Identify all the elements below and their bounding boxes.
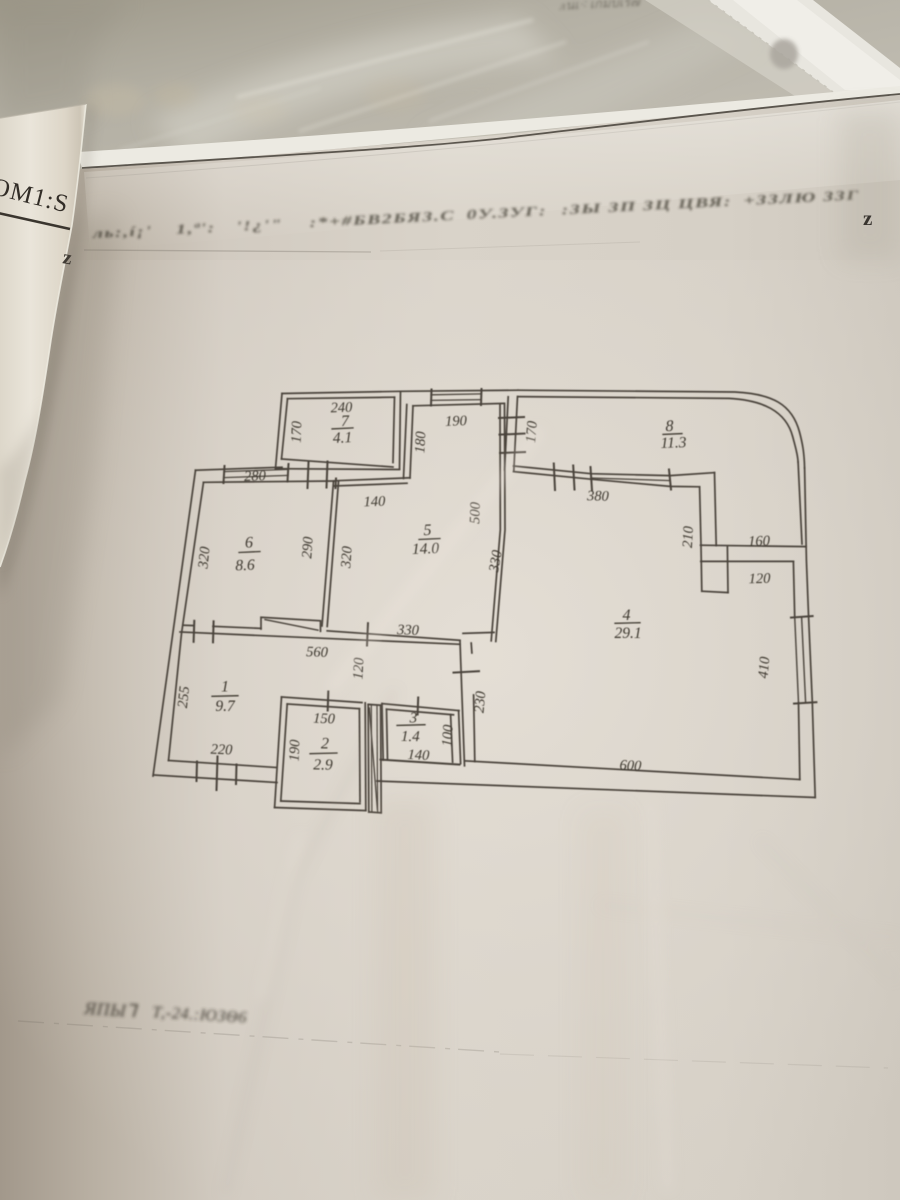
svg-text:140: 140 bbox=[407, 747, 430, 764]
svg-text:100: 100 bbox=[439, 723, 457, 747]
svg-text:160: 160 bbox=[748, 533, 771, 549]
svg-text:6: 6 bbox=[245, 534, 254, 551]
svg-text:4: 4 bbox=[623, 607, 631, 624]
svg-text:4.1: 4.1 bbox=[333, 429, 353, 447]
svg-text:380: 380 bbox=[586, 488, 610, 504]
svg-text:190: 190 bbox=[445, 413, 468, 430]
svg-text:280: 280 bbox=[244, 468, 267, 485]
svg-text:2: 2 bbox=[321, 735, 329, 752]
svg-text:180: 180 bbox=[412, 430, 429, 453]
svg-text:600: 600 bbox=[619, 757, 642, 774]
svg-text:5: 5 bbox=[423, 522, 432, 539]
svg-text:1.4: 1.4 bbox=[401, 729, 421, 745]
svg-text:255: 255 bbox=[175, 685, 193, 708]
svg-text:290: 290 bbox=[299, 535, 317, 559]
svg-text:560: 560 bbox=[306, 644, 329, 661]
svg-text:230: 230 bbox=[472, 690, 490, 714]
svg-text:29.1: 29.1 bbox=[614, 625, 641, 642]
svg-text:120: 120 bbox=[749, 571, 772, 587]
svg-text:320: 320 bbox=[338, 545, 356, 570]
svg-text:1: 1 bbox=[221, 679, 229, 696]
svg-text:8.6: 8.6 bbox=[235, 557, 255, 575]
svg-text:2.9: 2.9 bbox=[313, 756, 333, 773]
svg-text:410: 410 bbox=[756, 655, 774, 679]
svg-text:190: 190 bbox=[287, 739, 304, 762]
svg-text:3: 3 bbox=[409, 710, 418, 726]
svg-text:8: 8 bbox=[665, 418, 674, 435]
svg-text:11.3: 11.3 bbox=[660, 434, 687, 452]
svg-text:330: 330 bbox=[396, 622, 420, 639]
svg-text:140: 140 bbox=[363, 494, 386, 511]
svg-text:210: 210 bbox=[680, 525, 697, 548]
svg-text:9.7: 9.7 bbox=[215, 698, 236, 715]
svg-text:ЯПЫ⅂: ЯПЫ⅂ bbox=[83, 998, 139, 1021]
svg-text:240: 240 bbox=[330, 400, 353, 417]
svg-text:220: 220 bbox=[210, 742, 233, 759]
svg-text:170: 170 bbox=[289, 420, 306, 443]
svg-text:150: 150 bbox=[313, 711, 336, 728]
svg-text:320: 320 bbox=[195, 545, 213, 570]
